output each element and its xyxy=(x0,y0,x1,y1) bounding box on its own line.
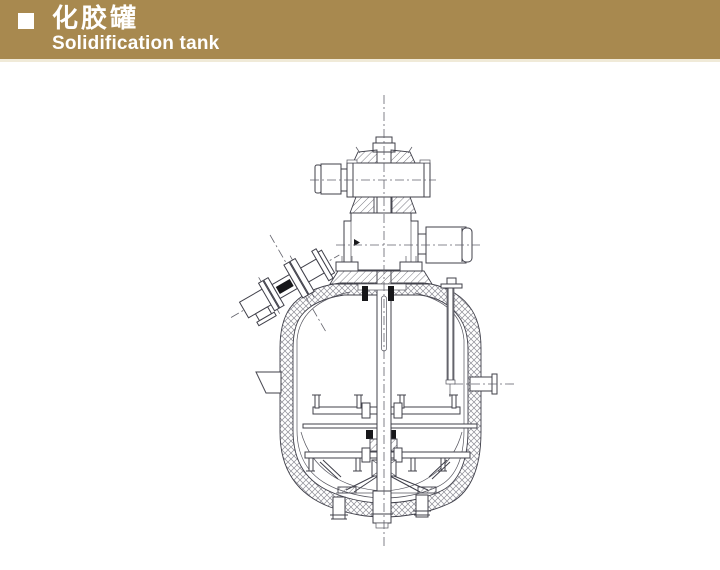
side-nozzle xyxy=(454,374,514,394)
bottom-nozzle-left xyxy=(330,497,348,519)
solidification-tank-diagram xyxy=(0,0,720,570)
motor-left xyxy=(315,164,347,194)
gearbox xyxy=(347,160,430,197)
catalog-page: 化胶罐 Solidification tank xyxy=(0,0,720,570)
bottom-nozzles xyxy=(330,491,431,528)
bottom-nozzle-right xyxy=(413,495,431,517)
support-bracket xyxy=(256,372,281,393)
mounting-flange xyxy=(330,271,432,284)
drive-stand xyxy=(344,213,418,270)
bottom-outlet-center xyxy=(371,491,393,528)
